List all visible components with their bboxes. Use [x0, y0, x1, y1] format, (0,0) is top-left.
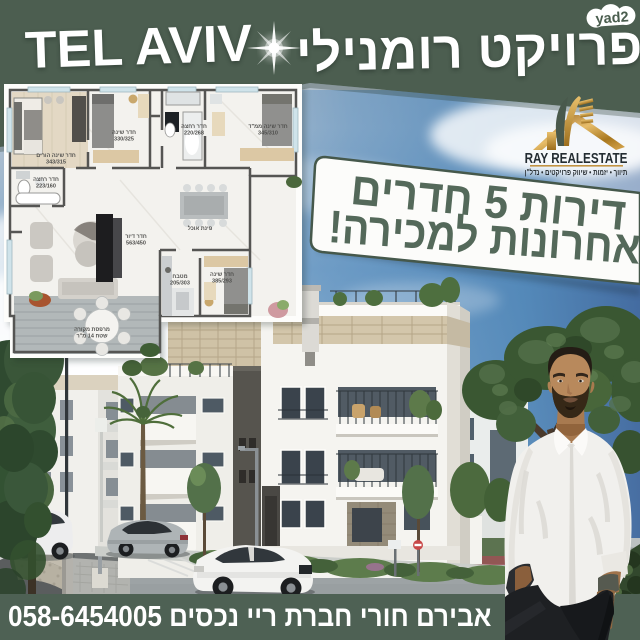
svg-text:חדר רחצה: חדר רחצה [181, 124, 207, 130]
svg-text:223/160: 223/160 [36, 184, 56, 190]
svg-text:330/325: 330/325 [114, 137, 134, 143]
svg-text:פינת אוכל: פינת אוכל [188, 225, 213, 232]
svg-text:חדר רחצה: חדר רחצה [33, 177, 59, 183]
svg-text:yad2: yad2 [595, 9, 629, 27]
svg-text:חדר שינה: חדר שינה [112, 130, 136, 136]
svg-text:חדר שינה: חדר שינה [210, 272, 234, 278]
svg-text:שטח 14 מ"ר: שטח 14 מ"ר [76, 334, 108, 340]
svg-text:220/268: 220/268 [184, 131, 204, 137]
svg-text:345/310: 345/310 [258, 131, 278, 137]
svg-text:563/450: 563/450 [126, 241, 146, 247]
svg-text:מרפסת מקורה: מרפסת מקורה [74, 327, 110, 333]
svg-text:385/293: 385/293 [212, 279, 232, 285]
svg-text:חדר שינה ממ"ד: חדר שינה ממ"ד [248, 124, 287, 130]
svg-text:תיווך • יזמות • שיווק פרויקטים: תיווך • יזמות • שיווק פרויקטים • נדל"ן [525, 168, 628, 177]
svg-text:חדר דיור: חדר דיור [125, 234, 147, 240]
svg-text:205/303: 205/303 [170, 281, 190, 287]
svg-text:343/315: 343/315 [46, 160, 66, 166]
svg-text:מטבח: מטבח [172, 274, 187, 280]
svg-text:חדר שינה הורים: חדר שינה הורים [36, 153, 76, 159]
svg-text:RAY REALESTATE: RAY REALESTATE [525, 150, 628, 167]
